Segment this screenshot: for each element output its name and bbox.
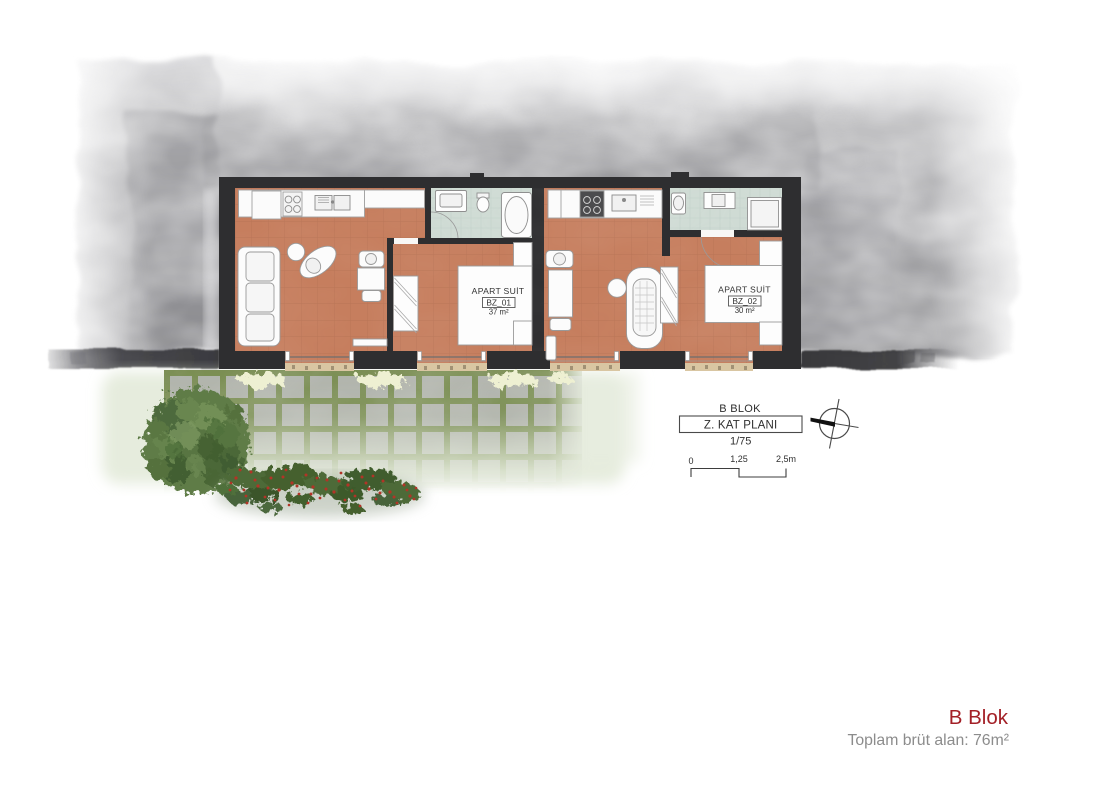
svg-text:BZ_01: BZ_01	[486, 298, 511, 308]
svg-text:BZ_02: BZ_02	[732, 296, 757, 306]
svg-text:Toplam brüt alan: 76m²: Toplam brüt alan: 76m²	[847, 732, 1009, 749]
svg-text:1,25: 1,25	[730, 454, 748, 464]
svg-text:30 m²: 30 m²	[735, 306, 755, 315]
svg-text:0: 0	[688, 456, 693, 466]
svg-text:APART SUİT: APART SUİT	[472, 286, 525, 296]
svg-text:1/75: 1/75	[730, 436, 751, 448]
svg-text:APART SUİT: APART SUİT	[718, 285, 771, 295]
svg-text:37 m²: 37 m²	[489, 308, 509, 317]
svg-text:B BLOK: B BLOK	[719, 403, 761, 415]
svg-text:Z. KAT PLANI: Z. KAT PLANI	[704, 420, 778, 432]
svg-text:B Blok: B Blok	[949, 706, 1009, 729]
svg-text:2,5m: 2,5m	[776, 454, 796, 464]
